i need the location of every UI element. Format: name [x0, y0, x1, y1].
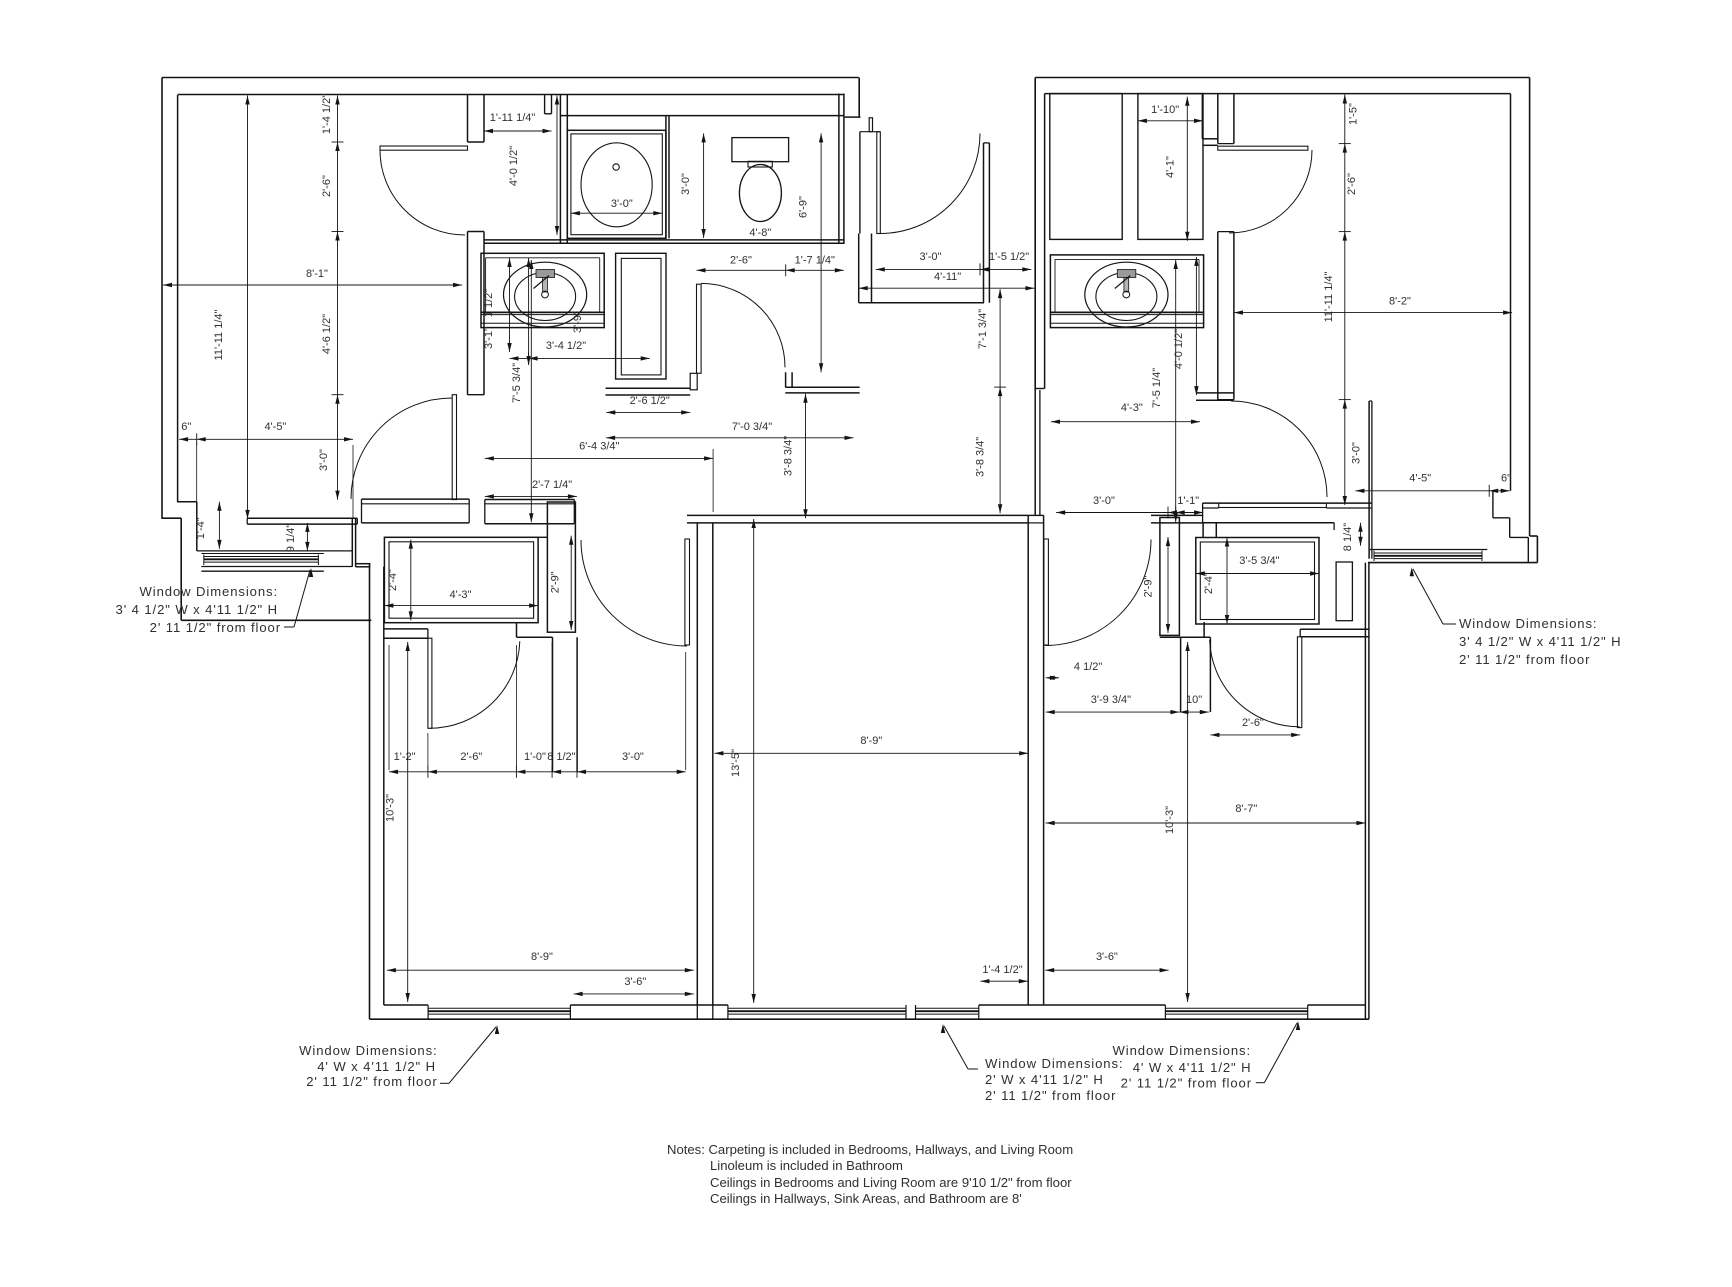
- svg-text:4'-6 1/2": 4'-6 1/2": [321, 314, 333, 354]
- svg-text:6": 6": [1501, 473, 1511, 485]
- svg-text:2'-9": 2'-9": [549, 571, 561, 593]
- svg-text:3'-0": 3'-0": [680, 173, 692, 195]
- svg-text:4' W x 4'11 1/2" H: 4' W x 4'11 1/2" H: [1133, 1060, 1252, 1075]
- svg-text:7'-0 3/4": 7'-0 3/4": [732, 421, 772, 433]
- svg-text:2' W x 4'11 1/2" H: 2' W x 4'11 1/2" H: [985, 1072, 1104, 1087]
- svg-text:Window Dimensions:: Window Dimensions:: [1459, 616, 1597, 631]
- svg-text:9 1/4": 9 1/4": [285, 524, 297, 552]
- svg-text:10'-3": 10'-3": [1164, 806, 1176, 834]
- svg-text:3'-0": 3'-0": [1093, 495, 1115, 507]
- svg-text:1'-4 1/2": 1'-4 1/2": [321, 94, 333, 134]
- svg-text:1'-11 1/4": 1'-11 1/4": [490, 112, 536, 124]
- svg-text:2'-6": 2'-6": [1346, 173, 1358, 195]
- svg-text:2' 11 1/2" from floor: 2' 11 1/2" from floor: [985, 1088, 1116, 1103]
- svg-text:4'-5": 4'-5": [264, 421, 286, 433]
- svg-text:2'-6": 2'-6": [321, 175, 333, 197]
- svg-text:1'-1": 1'-1": [1177, 495, 1199, 507]
- svg-text:4'-11": 4'-11": [934, 271, 961, 283]
- svg-text:4'-8": 4'-8": [749, 227, 771, 239]
- svg-text:4' W x 4'11 1/2" H: 4' W x 4'11 1/2" H: [317, 1059, 436, 1074]
- svg-text:2'-6": 2'-6": [730, 255, 752, 267]
- svg-text:3'-9 3/4": 3'-9 3/4": [1091, 694, 1131, 706]
- svg-text:1 1/2": 1 1/2": [483, 289, 495, 317]
- svg-text:6'-9": 6'-9": [797, 196, 809, 218]
- svg-text:6'-4 3/4": 6'-4 3/4": [579, 441, 619, 453]
- svg-text:3'-5 3/4": 3'-5 3/4": [1239, 555, 1279, 567]
- svg-text:8 1/2": 8 1/2": [547, 751, 575, 763]
- svg-text:1'-0": 1'-0": [524, 751, 546, 763]
- svg-text:7'-5 3/4": 7'-5 3/4": [511, 363, 523, 403]
- svg-text:2' 11 1/2" from floor: 2' 11 1/2" from floor: [150, 620, 281, 635]
- svg-text:3'-1": 3'-1": [483, 327, 495, 349]
- svg-text:2' 11 1/2" from floor: 2' 11 1/2" from floor: [1459, 652, 1590, 667]
- svg-text:3'-0": 3'-0": [1350, 442, 1362, 464]
- svg-text:8'-9": 8'-9": [531, 951, 553, 963]
- svg-text:11'-11 1/4": 11'-11 1/4": [1323, 271, 1335, 322]
- svg-text:4'-3": 4'-3": [450, 589, 472, 601]
- svg-text:2'-4": 2'-4": [387, 569, 399, 591]
- svg-text:1'-10": 1'-10": [1151, 104, 1179, 116]
- svg-text:11'-11 1/4": 11'-11 1/4": [213, 309, 225, 360]
- svg-text:4'-1": 4'-1": [1165, 156, 1177, 178]
- svg-text:3'-0": 3'-0": [920, 251, 942, 263]
- svg-text:4'-0 1/2": 4'-0 1/2": [508, 146, 520, 186]
- svg-text:8'-7": 8'-7": [1235, 803, 1257, 815]
- svg-text:Ceilings in Hallways, Sink Are: Ceilings in Hallways, Sink Areas, and Ba…: [710, 1191, 1022, 1206]
- svg-text:8'-1": 8'-1": [306, 268, 328, 280]
- svg-text:2'-9": 2'-9": [1143, 575, 1155, 597]
- svg-text:7'-5 1/4": 7'-5 1/4": [1151, 368, 1163, 408]
- svg-text:Window Dimensions:: Window Dimensions:: [985, 1056, 1123, 1071]
- svg-text:1'-4 1/2": 1'-4 1/2": [982, 964, 1022, 976]
- svg-text:1'-5": 1'-5": [1347, 103, 1359, 125]
- svg-text:8 1/4": 8 1/4": [1342, 523, 1354, 551]
- svg-text:1'-2": 1'-2": [394, 751, 416, 763]
- svg-text:2'-6": 2'-6": [460, 751, 482, 763]
- svg-text:4'-3": 4'-3": [1121, 402, 1143, 414]
- svg-text:2'-6 1/2": 2'-6 1/2": [630, 395, 670, 407]
- svg-text:6": 6": [181, 421, 191, 433]
- svg-text:3' 4 1/2" W x 4'11 1/2" H: 3' 4 1/2" W x 4'11 1/2" H: [116, 602, 278, 617]
- svg-text:2'-7 1/4": 2'-7 1/4": [532, 479, 572, 491]
- svg-text:1'-5 1/2": 1'-5 1/2": [989, 251, 1029, 263]
- svg-text:Window Dimensions:: Window Dimensions:: [299, 1043, 437, 1058]
- svg-text:3' 4 1/2" W x 4'11 1/2" H: 3' 4 1/2" W x 4'11 1/2" H: [1459, 634, 1621, 649]
- svg-text:3'-8 3/4": 3'-8 3/4": [783, 436, 795, 476]
- svg-text:3'-0": 3'-0": [611, 198, 633, 210]
- svg-text:3'-9": 3'-9": [572, 311, 584, 333]
- svg-text:2' 11 1/2" from floor: 2' 11 1/2" from floor: [306, 1074, 437, 1089]
- svg-text:2'-6": 2'-6": [1242, 717, 1264, 729]
- svg-text:3'-0": 3'-0": [318, 449, 330, 471]
- svg-text:7'-1 3/4": 7'-1 3/4": [977, 309, 989, 349]
- svg-text:10": 10": [1186, 694, 1202, 706]
- svg-text:Window Dimensions:: Window Dimensions:: [140, 584, 278, 599]
- svg-text:10'-3": 10'-3": [385, 794, 397, 822]
- svg-text:2'-4": 2'-4": [1203, 572, 1215, 594]
- svg-text:4 1/2": 4 1/2": [1074, 661, 1102, 673]
- svg-text:3'-6": 3'-6": [1096, 951, 1118, 963]
- svg-text:2' 11 1/2" from floor: 2' 11 1/2" from floor: [1121, 1076, 1252, 1091]
- svg-text:Ceilings in Bedrooms and Livin: Ceilings in Bedrooms and Living Room are…: [710, 1175, 1072, 1190]
- svg-text:1'-4": 1'-4": [195, 517, 207, 539]
- svg-text:3'-8 3/4": 3'-8 3/4": [975, 437, 987, 477]
- svg-text:8'-9": 8'-9": [860, 735, 882, 747]
- svg-text:8'-2": 8'-2": [1389, 296, 1411, 308]
- svg-text:4'-5": 4'-5": [1409, 473, 1431, 485]
- svg-text:1'-7 1/4": 1'-7 1/4": [795, 255, 835, 267]
- svg-text:3'-0": 3'-0": [622, 751, 644, 763]
- svg-text:Linoleum is included in Bathro: Linoleum is included in Bathroom: [710, 1158, 903, 1173]
- svg-text:Notes: Carpeting is included i: Notes: Carpeting is included in Bedrooms…: [667, 1142, 1073, 1157]
- svg-text:3'-6": 3'-6": [624, 976, 646, 988]
- svg-text:3'-4 1/2": 3'-4 1/2": [546, 340, 586, 352]
- svg-text:Window Dimensions:: Window Dimensions:: [1113, 1043, 1251, 1058]
- svg-text:4'-0 1/2": 4'-0 1/2": [1173, 329, 1185, 369]
